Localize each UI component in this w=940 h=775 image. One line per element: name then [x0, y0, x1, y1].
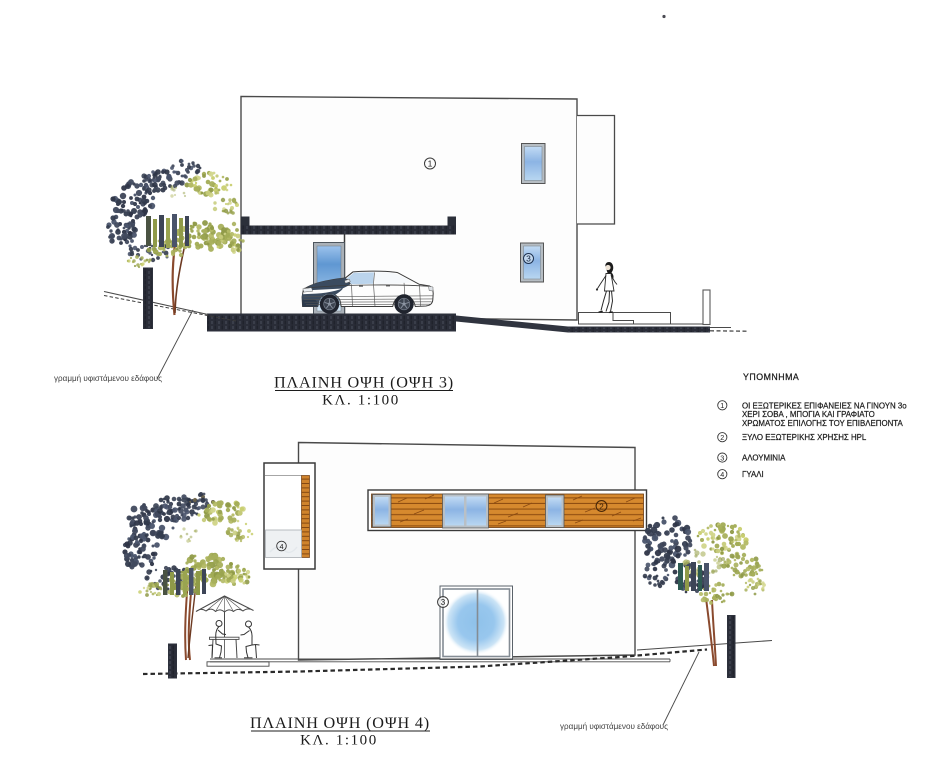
svg-text:ΓΥΑΛΙ: ΓΥΑΛΙ — [742, 470, 764, 479]
svg-text:3: 3 — [526, 254, 531, 264]
svg-text:ΠΛΑΙΝΗ ΟΨΗ (ΟΨΗ 4): ΠΛΑΙΝΗ ΟΨΗ (ΟΨΗ 4) — [250, 714, 430, 732]
svg-text:3: 3 — [441, 597, 446, 607]
svg-text:3: 3 — [720, 454, 724, 463]
svg-text:4: 4 — [720, 470, 724, 479]
svg-text:1: 1 — [428, 159, 433, 169]
svg-text:ΧΡΩΜΑΤΟΣ ΕΠΙΛΟΓΗΣ ΤΟΥ ΕΠΙΒΛΕΠΟ: ΧΡΩΜΑΤΟΣ ΕΠΙΛΟΓΗΣ ΤΟΥ ΕΠΙΒΛΕΠΟΝΤΑ — [742, 419, 904, 428]
svg-text:ΑΛΟΥΜΙΝΙΑ: ΑΛΟΥΜΙΝΙΑ — [742, 454, 786, 463]
svg-text:ΟΙ ΕΞΩΤΕΡΙΚΕΣ ΕΠΙΦΑΝΕΙΕΣ ΝΑ ΓΙ: ΟΙ ΕΞΩΤΕΡΙΚΕΣ ΕΠΙΦΑΝΕΙΕΣ ΝΑ ΓΙΝΟΥΝ 3ο — [742, 401, 907, 410]
svg-text:ΠΛΑΙΝΗ ΟΨΗ (ΟΨΗ 3): ΠΛΑΙΝΗ ΟΨΗ (ΟΨΗ 3) — [274, 374, 454, 392]
svg-text:1: 1 — [720, 401, 724, 410]
svg-text:2: 2 — [720, 433, 724, 442]
svg-text:γραμμή υφιστάμενου εδάφους: γραμμή υφιστάμενου εδάφους — [54, 374, 162, 383]
svg-text:2: 2 — [599, 501, 604, 511]
svg-text:ΚΛ. 1:100: ΚΛ. 1:100 — [322, 393, 400, 409]
svg-text:ΚΛ. 1:100: ΚΛ. 1:100 — [300, 733, 378, 749]
svg-text:4: 4 — [279, 542, 283, 551]
svg-text:ΧΕΡΙ ΣΟΒΑ , ΜΠΟΓΙΑ ΚΑΙ ΓΡΑΦΙΑΤ: ΧΕΡΙ ΣΟΒΑ , ΜΠΟΓΙΑ ΚΑΙ ΓΡΑΦΙΑΤΟ — [742, 410, 875, 419]
svg-text:ΞΥΛΟ ΕΞΩΤΕΡΙΚΗΣ ΧΡΗΣΗΣ HPL: ΞΥΛΟ ΕΞΩΤΕΡΙΚΗΣ ΧΡΗΣΗΣ HPL — [742, 433, 867, 442]
svg-text:γραμμή υφιστάμενου εδάφους: γραμμή υφιστάμενου εδάφους — [560, 722, 668, 731]
svg-text:ΥΠΟΜΝΗΜΑ: ΥΠΟΜΝΗΜΑ — [743, 372, 799, 382]
